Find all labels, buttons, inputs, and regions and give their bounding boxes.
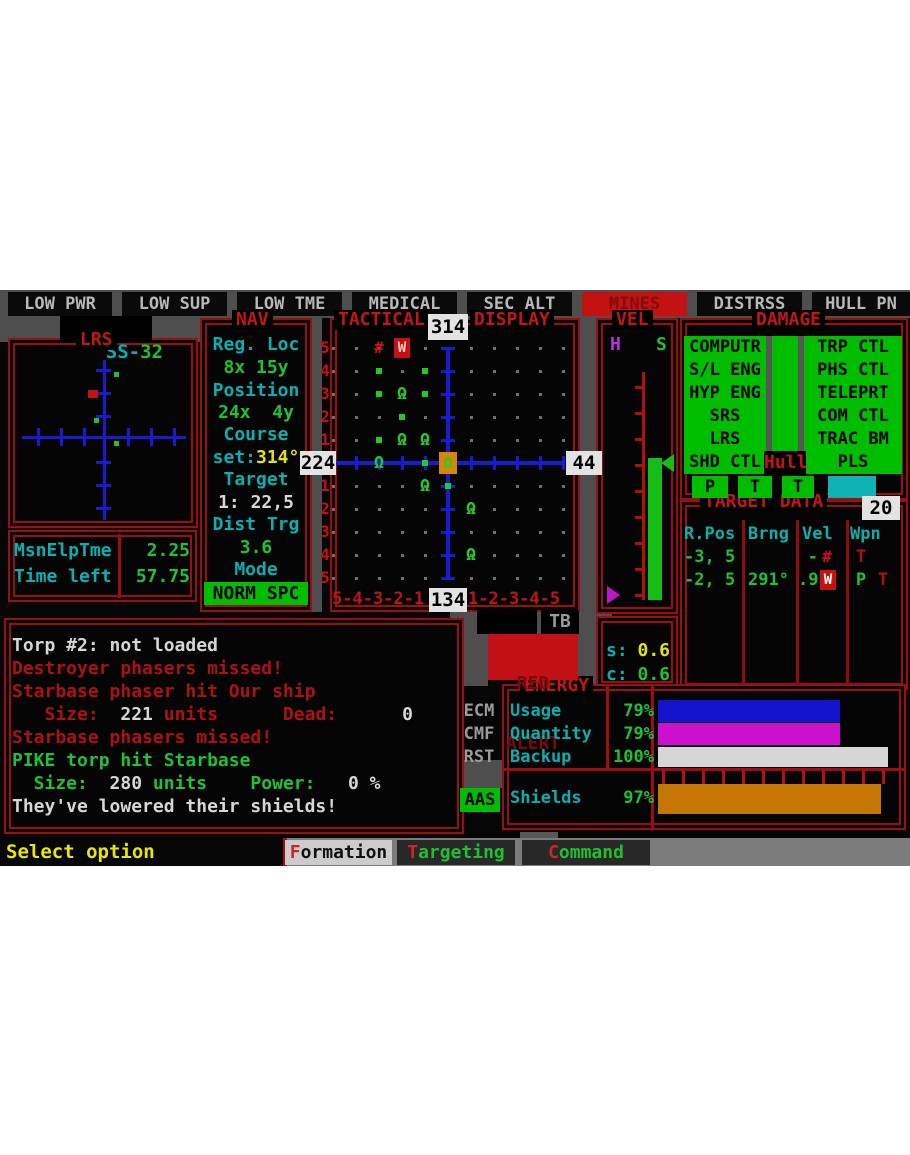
tactical-axis-tick	[441, 531, 455, 534]
grid-dot	[516, 577, 519, 580]
nav-readout-segment: 3.6	[240, 537, 273, 558]
log-message-segment: 221	[120, 704, 153, 725]
target-weapon-flag: P	[852, 569, 870, 591]
tactical-row-label: 3	[318, 521, 332, 543]
object-marker	[399, 414, 405, 420]
damage-system: COM CTL	[804, 405, 902, 428]
nav-title: NAV	[232, 310, 273, 330]
nav-readout-segment: Mode	[234, 559, 277, 580]
lrs-axis-tick	[96, 392, 111, 395]
damage-system: TRAC BM	[804, 428, 902, 451]
grid-dot	[493, 531, 496, 534]
tb-toggle[interactable]: TB	[541, 610, 579, 634]
enemy-ship-marker: Ω	[393, 383, 411, 405]
tactical-axis-tick	[516, 456, 519, 470]
grid-dot	[562, 508, 565, 511]
shield-scale-tick	[882, 770, 885, 784]
grid-dot	[516, 439, 519, 442]
grid-dot	[424, 508, 427, 511]
energy-label: Quantity	[510, 723, 602, 745]
damage-system: LRS	[684, 428, 766, 451]
nav-readout-segment: 314°	[256, 447, 299, 468]
grid-dot	[424, 554, 427, 557]
nav-readout-segment: 24x 4y	[218, 402, 294, 423]
log-message-segment: units Dead:	[153, 704, 337, 725]
energy-bar-backup	[658, 747, 888, 767]
menu-item-command[interactable]: Command	[522, 840, 650, 865]
grid-dot	[355, 508, 358, 511]
damage-status-box: P	[692, 476, 728, 498]
tactical-axis-tick	[441, 347, 455, 350]
tactical-row-label: 4	[318, 544, 332, 566]
grid-dot	[355, 554, 358, 557]
enemy-ship-marker: Ω	[416, 429, 434, 451]
energy-value: 79%	[596, 700, 654, 722]
vel-scale-tick	[635, 568, 645, 571]
grid-dot	[539, 485, 542, 488]
lrs-contact-friendly	[114, 372, 119, 377]
object-marker	[376, 368, 382, 374]
target-velocity: -	[798, 546, 818, 568]
sector-toggle[interactable]: ◄ss►	[477, 610, 537, 634]
grid-dot	[470, 347, 473, 350]
lrs-axis-tick	[96, 484, 111, 487]
enemy-ship-marker: Ω	[393, 429, 411, 451]
grid-dot	[378, 416, 381, 419]
damage-system: TRP CTL	[804, 336, 902, 359]
grid-dot	[332, 485, 335, 488]
tactical-row-label: 5	[318, 337, 332, 359]
tactical-title: TACTICAL	[334, 310, 429, 330]
log-message: They've lowered their shields!	[12, 795, 452, 818]
nav-readout-segment: 8x 15y	[223, 357, 288, 378]
shield-scale-tick	[742, 770, 745, 784]
tactical-col-labels-left: 5-4-3-2-1	[332, 588, 430, 610]
vel-scale-tick	[635, 412, 645, 415]
tactical-axis-tick	[401, 456, 404, 470]
hull-status: Hull	[764, 451, 806, 474]
grid-dot	[493, 347, 496, 350]
damage-title: DAMAGE	[752, 310, 825, 330]
energy-bar-shields	[658, 784, 881, 814]
damage-system: S/L ENG	[684, 359, 766, 382]
red-alert-line1: RED	[488, 672, 578, 695]
grid-dot	[332, 508, 335, 511]
grid-dot	[539, 347, 542, 350]
lrs-axis-tick	[96, 369, 111, 372]
vel-bar	[648, 458, 662, 600]
grid-dot	[332, 347, 335, 350]
lrs-axis-tick	[83, 428, 86, 446]
grid-dot	[355, 393, 358, 396]
grid-dot	[355, 347, 358, 350]
damage-system: COMPUTR	[684, 336, 766, 359]
enemy-ship-marker: Ω	[370, 452, 388, 474]
object-marker	[422, 368, 428, 374]
tactical-axis-tick	[441, 508, 455, 511]
grid-dot	[539, 554, 542, 557]
mission-timer-label: MsnElpTme	[14, 540, 116, 562]
grid-dot	[516, 485, 519, 488]
nav-readout: Reg. Loc	[202, 334, 310, 356]
shield-scale-tick	[682, 770, 685, 784]
nav-readout: 1: 22,5	[202, 492, 310, 514]
damage-system: HYP ENG	[684, 382, 766, 405]
grid-dot	[493, 554, 496, 557]
tactical-axis-tick	[441, 370, 455, 373]
grid-dot	[424, 416, 427, 419]
menu-item-targeting[interactable]: Targeting	[397, 840, 515, 865]
status-indicator-hull-pn: HULL PN	[812, 292, 910, 316]
grid-dot	[516, 370, 519, 373]
grid-dot	[493, 577, 496, 580]
log-message: Starbase phasers missed!	[12, 726, 452, 749]
nav-readout-segment: Dist Trg	[213, 514, 300, 535]
grid-dot	[562, 554, 565, 557]
damage-system: TELEPRT	[804, 382, 902, 405]
shield-scale-tick	[862, 770, 865, 784]
nav-readout-segment: Target	[223, 469, 288, 490]
grid-dot	[516, 554, 519, 557]
tactical-row-label: 2	[318, 498, 332, 520]
tactical-row-label: 3	[318, 383, 332, 405]
grid-dot	[470, 577, 473, 580]
grid-dot	[539, 393, 542, 396]
display-title: DISPLAY	[470, 310, 554, 330]
target-col-header: Vel	[802, 523, 846, 545]
target-divider-1	[742, 520, 745, 686]
grid-dot	[493, 439, 496, 442]
vel-h-label: H	[610, 334, 632, 356]
target-rpos: -3, 5	[684, 546, 744, 568]
grid-dot	[539, 370, 542, 373]
menu-item-label: ommand	[559, 842, 624, 863]
screen: SS-32 LRS NAV TACTICAL DISPLAY VEL DAMAG…	[0, 0, 910, 1155]
log-message: Size: 221 units Dead: 0	[12, 703, 452, 726]
lrs-axis-tick	[60, 428, 63, 446]
tactical-axis-tick	[441, 393, 455, 396]
status-indicator-low-sup: LOW SUP	[122, 292, 227, 316]
energy-bar-usage	[658, 700, 840, 722]
aas-indicator: AAS	[460, 788, 500, 812]
log-message-segment: Size:	[12, 704, 120, 725]
grid-dot	[378, 577, 381, 580]
tactical-axis-tick	[441, 439, 455, 442]
grid-dot	[470, 531, 473, 534]
tactical-row-label: 5	[318, 567, 332, 589]
lrs-contact-hostile	[88, 390, 98, 398]
target-rpos: -2, 5	[684, 569, 744, 591]
log-message-segment: 0	[337, 704, 413, 725]
course-speed-value: 0.6	[626, 664, 670, 686]
grid-dot	[493, 416, 496, 419]
nav-readout: set:314°	[202, 447, 310, 469]
grid-dot	[355, 370, 358, 373]
game-viewport: SS-32 LRS NAV TACTICAL DISPLAY VEL DAMAG…	[0, 290, 910, 866]
menu-notch	[520, 832, 558, 838]
grid-dot	[355, 485, 358, 488]
log-message: Torp #2: not loaded	[12, 634, 452, 657]
shield-scale-tick	[662, 770, 665, 784]
damage-system: SRS	[684, 405, 766, 428]
speed-value: 0.6	[626, 640, 670, 662]
grid-dot	[378, 531, 381, 534]
tactical-axis-tick	[355, 456, 358, 470]
shield-scale-tick	[782, 770, 785, 784]
vel-title: VEL	[612, 310, 653, 330]
shield-scale-tick	[822, 770, 825, 784]
ecm-label: ECM	[456, 700, 502, 722]
grid-dot	[378, 485, 381, 488]
grid-dot	[539, 577, 542, 580]
grid-dot	[539, 439, 542, 442]
grid-dot	[539, 531, 542, 534]
grid-dot	[539, 508, 542, 511]
object-marker	[422, 460, 428, 466]
grid-dot	[516, 347, 519, 350]
grid-dot	[470, 439, 473, 442]
grid-dot	[332, 554, 335, 557]
grid-dot	[401, 508, 404, 511]
grid-dot	[562, 416, 565, 419]
tactical-row-label: 4	[318, 360, 332, 382]
menu-hotkey: T	[407, 842, 418, 863]
log-message-segment: 280	[110, 773, 143, 794]
grid-dot	[424, 577, 427, 580]
tactical-axis-tick	[539, 456, 542, 470]
tactical-axis-tick	[493, 456, 496, 470]
player-ship-marker: Ω	[439, 452, 457, 474]
damage-system: PLS	[804, 451, 902, 474]
log-message-segment: PIKE torp hit Starbase	[12, 750, 250, 771]
grid-dot	[562, 347, 565, 350]
enemy-ship-marker: Ω	[462, 544, 480, 566]
vel-s-label: S	[656, 334, 676, 356]
grid-dot	[516, 393, 519, 396]
nav-readout-segment: set:	[213, 447, 256, 468]
mission-timer-value: 2.25	[122, 540, 190, 562]
target-col-header: Wpn	[850, 523, 904, 545]
grid-dot	[470, 393, 473, 396]
status-indicator-low-pwr: LOW PWR	[8, 292, 112, 316]
damage-status-box-cyan	[828, 476, 876, 498]
grid-dot	[562, 439, 565, 442]
log-message: Size: 280 units Power: 0 %	[12, 772, 452, 795]
grid-dot	[562, 485, 565, 488]
energy-value: 97%	[596, 787, 654, 809]
target-count-box: 20	[862, 496, 900, 520]
starbase-marker: W	[394, 338, 410, 358]
tactical-row-label: 1	[318, 475, 332, 497]
mission-timer-label: Time left	[14, 566, 116, 588]
menu-hotkey: F	[290, 842, 301, 863]
object-marker	[376, 391, 382, 397]
nav-readout: 24x 4y	[202, 402, 310, 424]
grid-dot	[332, 370, 335, 373]
target-type-icon: #	[820, 547, 834, 567]
grid-dot	[470, 416, 473, 419]
grid-dot	[562, 370, 565, 373]
nav-mode-value: NORM SPC	[204, 582, 308, 605]
menu-hotkey: C	[548, 842, 559, 863]
heading-value-box: 314	[428, 314, 468, 340]
log-message: Starbase phaser hit Our ship	[12, 680, 452, 703]
cmf-label: CMF	[456, 723, 502, 745]
lrs-title: LRS	[76, 330, 117, 350]
energy-label: Backup	[510, 746, 602, 768]
lrs-axis-tick	[96, 507, 111, 510]
nav-readout: Dist Trg	[202, 514, 310, 536]
grid-dot	[401, 370, 404, 373]
enemy-ship-marker: Ω	[416, 475, 434, 497]
grid-dot	[332, 416, 335, 419]
shield-scale-tick	[702, 770, 705, 784]
lrs-axis-tick	[127, 428, 130, 446]
mission-timer-divider	[118, 534, 121, 598]
shield-scale-tick	[802, 770, 805, 784]
lrs-y-axis	[103, 360, 106, 520]
energy-value: 100%	[596, 746, 654, 768]
grid-dot	[562, 531, 565, 534]
vel-scale-tick	[635, 464, 645, 467]
nav-readout-segment: Position	[213, 380, 300, 401]
grid-dot	[493, 508, 496, 511]
lrs-axis-tick	[150, 428, 153, 446]
lrs-contact-friendly	[94, 418, 99, 423]
grid-dot	[493, 393, 496, 396]
tactical-row-label: 1	[318, 429, 332, 451]
tactical-row-label: 2	[318, 406, 332, 428]
vel-scale-line	[642, 372, 645, 600]
target-weapon-flag: T	[874, 569, 892, 591]
grid-dot	[424, 347, 427, 350]
damage-status-box: T	[738, 476, 772, 498]
red-alert-banner: RED ALERT	[488, 634, 578, 680]
log-message: Destroyer phasers missed!	[12, 657, 452, 680]
grid-dot	[332, 577, 335, 580]
grid-dot	[470, 370, 473, 373]
grid-dot	[516, 531, 519, 534]
shield-scale-tick	[722, 770, 725, 784]
vel-scale-tick	[635, 516, 645, 519]
log-message-segment: Starbase phasers missed!	[12, 727, 272, 748]
target-bearing: 291°	[748, 569, 800, 591]
grid-dot	[401, 577, 404, 580]
log-message-segment: They've lowered their shields!	[12, 796, 337, 817]
tactical-axis-tick	[441, 554, 455, 557]
damage-system: SHD CTL	[684, 451, 766, 474]
tactical-right-value-box: 44	[566, 451, 602, 475]
energy-label: Shields	[510, 787, 602, 809]
target-col-header: Brng	[748, 523, 796, 545]
grid-dot	[355, 439, 358, 442]
grid-dot	[424, 531, 427, 534]
grid-dot	[332, 439, 335, 442]
rst-label: RST	[456, 746, 502, 768]
nav-readout: 3.6	[202, 537, 310, 559]
vel-scale-tick	[635, 542, 645, 545]
log-message-segment: Size:	[12, 773, 110, 794]
energy-bar-quantity	[658, 723, 840, 745]
grid-dot	[378, 508, 381, 511]
vel-min-marker-icon	[607, 586, 620, 604]
tactical-axis-tick	[470, 456, 473, 470]
log-message-segment: Torp #2: not loaded	[12, 635, 218, 656]
grid-dot	[562, 393, 565, 396]
ship-id-number: 32	[140, 341, 163, 363]
damage-status-box: T	[782, 476, 814, 498]
nav-readout: Target	[202, 469, 310, 491]
vel-scale-tick	[635, 386, 645, 389]
log-message-segment: 0 %	[315, 773, 380, 794]
log-message-segment: units Power:	[142, 773, 315, 794]
lrs-axis-tick	[96, 461, 111, 464]
grid-dot	[539, 416, 542, 419]
grid-dot	[332, 393, 335, 396]
vel-scale-tick	[635, 594, 645, 597]
grid-dot	[355, 416, 358, 419]
grid-dot	[401, 531, 404, 534]
target-divider-2	[796, 520, 799, 686]
menu-item-formation[interactable]: Formation	[285, 840, 392, 865]
grid-dot	[401, 485, 404, 488]
grid-dot	[493, 485, 496, 488]
lrs-contact-friendly	[114, 441, 119, 446]
lrs-axis-tick	[37, 428, 40, 446]
grid-dot	[470, 485, 473, 488]
command-prompt: Select option	[6, 840, 266, 864]
log-message: PIKE torp hit Starbase	[12, 749, 452, 772]
nav-readout: 8x 15y	[202, 357, 310, 379]
vel-scale-tick	[635, 490, 645, 493]
enemy-ship-marker: Ω	[462, 498, 480, 520]
target-divider-3	[846, 520, 849, 686]
nav-readout-segment: 1: 22,5	[218, 492, 294, 513]
tactical-axis-tick	[441, 416, 455, 419]
grid-dot	[355, 577, 358, 580]
energy-label: Usage	[510, 700, 602, 722]
target-type-icon: W	[820, 570, 836, 590]
object-marker	[422, 391, 428, 397]
tactical-bottom-value-box: 134	[429, 588, 467, 612]
object-marker	[376, 437, 382, 443]
lrs-axis-tick	[173, 428, 176, 446]
debris-marker: #	[371, 337, 387, 359]
vel-marker-icon	[661, 454, 674, 472]
menu-item-label: ormation	[301, 842, 388, 863]
nav-readout-segment: Course	[223, 424, 288, 445]
target-velocity: .9	[798, 569, 818, 591]
tactical-col-labels-right: 1-2-3-4-5	[468, 588, 566, 610]
tactical-left-value-box: 224	[300, 451, 336, 475]
vel-scale-tick	[635, 438, 645, 441]
nav-readout-segment: Reg. Loc	[213, 334, 300, 355]
shield-scale-tick	[762, 770, 765, 784]
object-marker	[445, 483, 451, 489]
grid-dot	[332, 531, 335, 534]
tactical-axis-tick	[441, 577, 455, 580]
grid-dot	[378, 554, 381, 557]
tactical-axis-tick	[562, 456, 565, 470]
mission-timer-value: 57.75	[122, 566, 190, 588]
grid-dot	[516, 416, 519, 419]
lrs-x-axis	[22, 436, 186, 439]
log-message-segment: Starbase phaser hit Our ship	[12, 681, 315, 702]
menu-item-label: argeting	[418, 842, 505, 863]
target-weapon-flag: T	[852, 546, 870, 568]
energy-value: 79%	[596, 723, 654, 745]
nav-readout: Mode	[202, 559, 310, 581]
